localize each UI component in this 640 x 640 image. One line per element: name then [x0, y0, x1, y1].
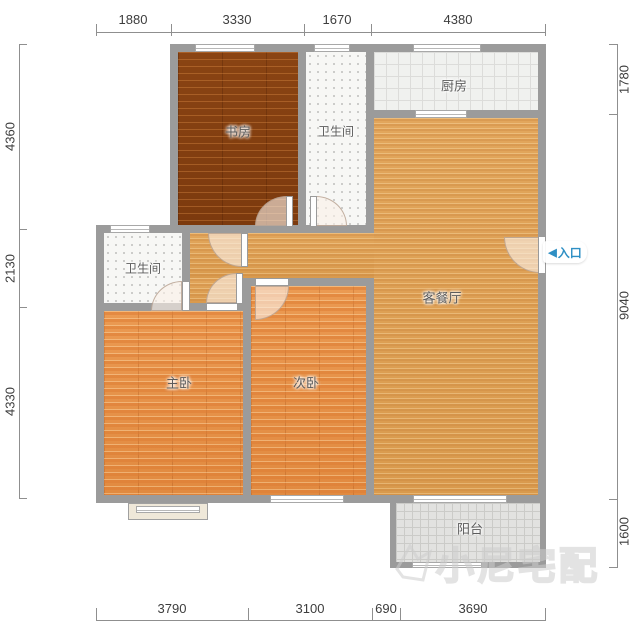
dim-line-bottom [96, 620, 546, 621]
bay-window-glass [136, 506, 200, 513]
study-door-leaf [286, 196, 293, 227]
dim-top-2: 3330 [207, 12, 267, 27]
label-living: 客餐厅 [422, 288, 461, 307]
wall-study-bottom [178, 225, 374, 233]
wall-second-right [366, 286, 374, 495]
dim-tick [545, 608, 546, 620]
dim-left-3: 4330 [3, 378, 18, 426]
dim-tick [545, 24, 546, 36]
dim-right-3: 1600 [617, 508, 632, 556]
window-bathleft-top [110, 225, 150, 233]
label-master: 主卧 [166, 373, 192, 392]
label-kitchen: 厨房 [441, 76, 467, 95]
dim-tick [96, 24, 97, 36]
dim-bottom-4: 3690 [443, 601, 503, 616]
master-door-leaf [236, 273, 243, 304]
hall-door-leaf [241, 233, 248, 267]
dim-tick [96, 608, 97, 620]
second-door-opening [255, 278, 289, 286]
wall-left-lower [96, 225, 104, 503]
dim-left-1: 4360 [3, 113, 18, 161]
dim-line-left [19, 44, 20, 499]
dim-tick [248, 608, 249, 620]
entrance-label: 入口 [558, 244, 582, 261]
label-bath-left: 卫生间 [125, 260, 161, 277]
dim-tick [609, 44, 617, 45]
dim-line-top [96, 32, 546, 33]
opening-living-balcony [413, 495, 507, 503]
dim-left-2: 2130 [3, 245, 18, 293]
wall-study-right [298, 52, 306, 233]
bath-top-door-leaf [310, 196, 317, 227]
dim-tick [19, 307, 27, 308]
dim-top-4: 4380 [428, 12, 488, 27]
wall-balcony-left [390, 503, 396, 568]
opening-kitchen-pass [415, 110, 467, 118]
dim-tick [171, 24, 172, 36]
window-study-top [195, 44, 255, 52]
wall-bath-right [366, 52, 374, 233]
dim-top-3: 1670 [307, 12, 367, 27]
dim-tick [609, 114, 617, 115]
dim-tick [19, 498, 27, 499]
dim-tick [609, 567, 617, 568]
label-study: 书房 [225, 122, 251, 141]
label-balcony: 阳台 [457, 519, 483, 538]
label-bath-top: 卫生间 [318, 123, 354, 140]
master-door-opening [206, 303, 238, 311]
window-kitchen-top [413, 44, 481, 52]
window-balcony-bottom [412, 562, 482, 568]
dim-bottom-1: 3790 [142, 601, 202, 616]
dim-right-2: 9040 [617, 282, 632, 330]
dim-tick [371, 24, 372, 36]
entrance-arrow-icon: ◀ [548, 246, 556, 259]
window-bath-top [314, 44, 350, 52]
dim-tick [19, 229, 27, 230]
bath-left-door-leaf [182, 281, 190, 311]
floor-plan: 书房 卫生间 厨房 卫生间 客餐厅 主卧 次卧 阳台 ◀ 入口 1880 333… [0, 0, 640, 640]
dim-bottom-2: 3100 [280, 601, 340, 616]
dim-top-1: 1880 [103, 12, 163, 27]
wall-balcony-right [540, 503, 546, 568]
room-living-floor [374, 118, 538, 495]
dim-tick [304, 24, 305, 36]
wall-left-upper [170, 44, 178, 233]
dim-bottom-3: 690 [360, 601, 412, 616]
dim-right-1: 1780 [617, 56, 632, 104]
room-master-floor [104, 311, 243, 495]
dim-tick [609, 499, 617, 500]
label-second: 次卧 [293, 373, 319, 392]
wall-bedroom-divider [243, 278, 251, 503]
entrance-marker: ◀ 入口 [543, 241, 587, 263]
dim-tick [19, 44, 27, 45]
window-second-bottom [270, 495, 344, 503]
